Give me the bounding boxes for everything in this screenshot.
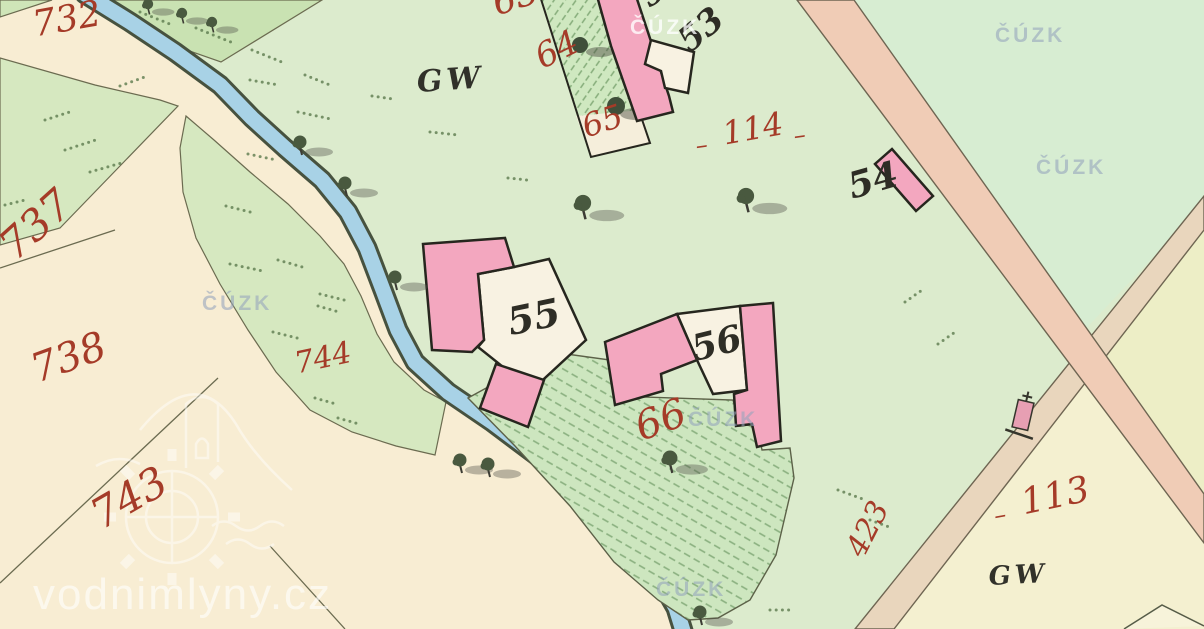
parcel-number-label: –	[792, 122, 807, 147]
landuse-label: GW	[988, 561, 1049, 590]
parcel-number-label: 743	[84, 460, 174, 536]
parcel-number-label: 66	[630, 393, 692, 448]
cuzk-watermark: ČÚZK	[688, 408, 758, 432]
cuzk-watermark: ČÚZK	[995, 24, 1065, 48]
parcel-number-label: 738	[26, 326, 111, 390]
parcel-number-label: 423	[842, 497, 895, 562]
landuse-label: GW	[416, 63, 485, 98]
house-number-label: 56	[688, 320, 745, 367]
parcel-number-label: –	[992, 502, 1008, 528]
cuzk-watermark: ČÚZK	[630, 16, 700, 40]
parcel-number-label: 113	[1018, 472, 1093, 522]
parcel-number-label: 737	[0, 182, 80, 267]
parcel-number-label: –	[694, 132, 709, 157]
house-number-label: 54	[844, 156, 902, 204]
parcel-number-label: 63	[488, 0, 543, 22]
cuzk-watermark: ČÚZK	[656, 578, 726, 602]
cuzk-watermark: ČÚZK	[202, 292, 272, 316]
site-watermark: vodnimlyny.cz	[33, 570, 332, 620]
house-number-label: 55	[504, 293, 564, 341]
cadastral-map: 73273773874374463646566114113423–––52535…	[0, 0, 1204, 629]
parcel-number-label: 114	[720, 107, 786, 149]
parcel-number-label: 744	[292, 338, 354, 379]
parcel-number-label: 732	[30, 0, 104, 43]
parcel-number-label: 65	[578, 99, 627, 142]
house-number-label: 52	[634, 0, 689, 12]
cuzk-watermark: ČÚZK	[1036, 156, 1106, 180]
map-labels-layer: 73273773874374463646566114113423–––52535…	[0, 0, 1204, 629]
parcel-number-label: 64	[530, 25, 584, 75]
